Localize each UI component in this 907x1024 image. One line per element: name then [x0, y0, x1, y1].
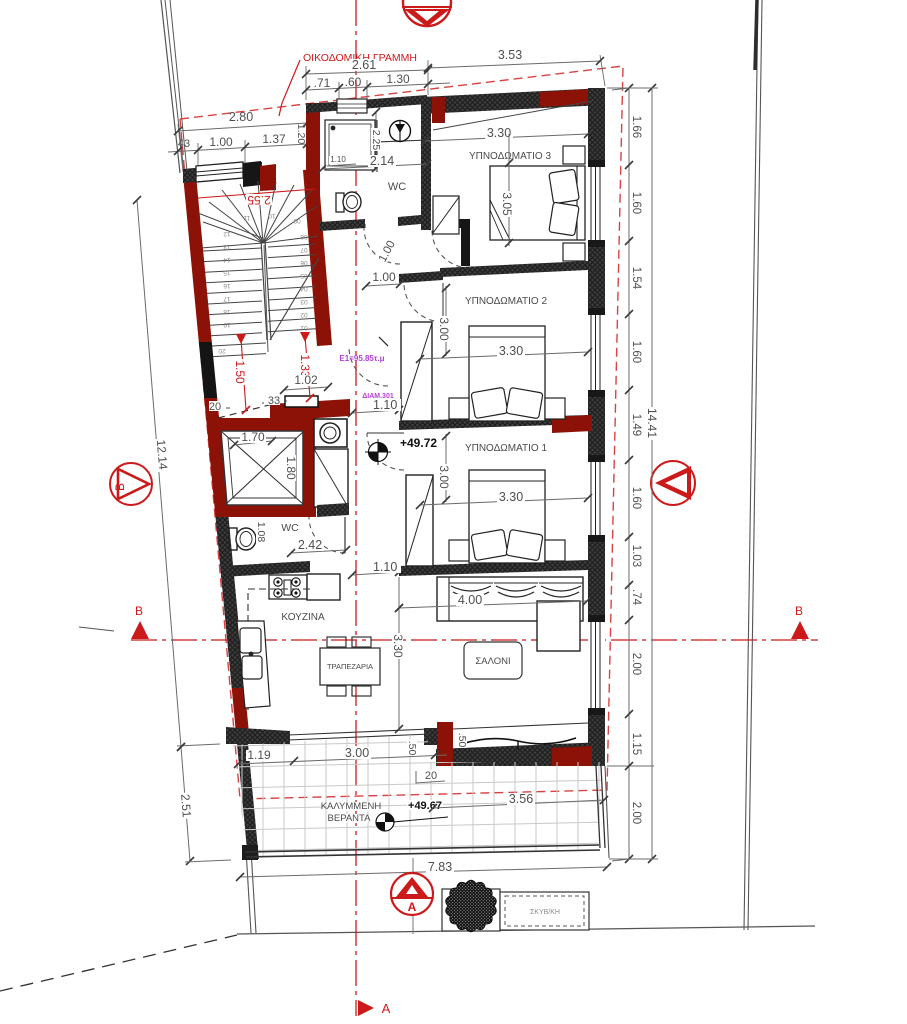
svg-text:09: 09: [293, 217, 301, 224]
svg-text:WC: WC: [388, 181, 406, 193]
svg-text:1.54: 1.54: [630, 267, 642, 290]
svg-text:1.02: 1.02: [294, 373, 318, 387]
svg-text:B: B: [113, 483, 127, 491]
svg-text:3.53: 3.53: [498, 48, 522, 62]
svg-text:1.15: 1.15: [630, 733, 642, 755]
svg-text:ΥΠΝΟΔΩΜΑΤΙΟ 2: ΥΠΝΟΔΩΜΑΤΙΟ 2: [465, 296, 548, 307]
svg-text:02: 02: [300, 311, 308, 318]
svg-text:1.60: 1.60: [630, 341, 642, 363]
svg-text:1.70: 1.70: [241, 430, 265, 444]
svg-text:ΣΑΛΟΝΙ: ΣΑΛΟΝΙ: [475, 656, 510, 667]
svg-text:2.25: 2.25: [370, 130, 382, 151]
svg-text:20: 20: [218, 347, 226, 354]
svg-text:ΥΠΝΟΔΩΜΑΤΙΟ 3: ΥΠΝΟΔΩΜΑΤΙΟ 3: [469, 151, 552, 162]
svg-text:2.00: 2.00: [630, 653, 642, 675]
svg-text:+49.67: +49.67: [408, 800, 442, 812]
svg-text:1.60: 1.60: [630, 487, 642, 509]
svg-text:1.19: 1.19: [247, 748, 271, 762]
svg-text:06: 06: [300, 259, 308, 266]
svg-text:08: 08: [300, 233, 308, 240]
svg-text:A: A: [382, 1001, 391, 1016]
svg-text:04: 04: [300, 285, 308, 292]
svg-text:1.00: 1.00: [372, 270, 396, 284]
svg-text:1.30: 1.30: [386, 72, 410, 86]
svg-text:13: 13: [223, 243, 231, 250]
svg-text:.74: .74: [630, 589, 642, 606]
svg-text:10: 10: [268, 212, 276, 219]
svg-text:2.51: 2.51: [178, 794, 194, 819]
svg-text:33: 33: [268, 395, 280, 407]
svg-text:1.10: 1.10: [373, 560, 397, 574]
svg-text:03: 03: [300, 298, 308, 305]
svg-text:1.50: 1.50: [233, 360, 247, 384]
svg-text:11: 11: [243, 214, 250, 221]
svg-text:3.56: 3.56: [509, 792, 533, 806]
svg-text:17: 17: [223, 295, 231, 302]
svg-text:.50: .50: [406, 741, 418, 756]
svg-text:14.41: 14.41: [645, 408, 659, 438]
svg-text:2.42: 2.42: [298, 538, 322, 552]
svg-text:.60: .60: [345, 75, 362, 89]
svg-text:18: 18: [223, 308, 231, 315]
svg-text:1.10: 1.10: [373, 398, 397, 412]
svg-text:19: 19: [223, 321, 231, 328]
svg-text:B: B: [795, 604, 803, 618]
svg-text:1.80: 1.80: [284, 456, 298, 480]
svg-text:1.00: 1.00: [209, 135, 233, 149]
svg-text:1.03: 1.03: [630, 545, 642, 567]
svg-text:2.55: 2.55: [247, 193, 271, 207]
svg-text:20: 20: [209, 401, 221, 413]
svg-text:B: B: [135, 604, 143, 618]
svg-text:ΚΟΥΖΙΝΑ: ΚΟΥΖΙΝΑ: [281, 612, 325, 623]
svg-text:WC: WC: [281, 522, 299, 534]
svg-text:3.00: 3.00: [345, 746, 369, 760]
svg-text:2.14: 2.14: [370, 154, 394, 168]
svg-text:ΔΙΑΜ.301: ΔΙΑΜ.301: [362, 393, 394, 400]
svg-text:3.30: 3.30: [487, 126, 511, 140]
svg-text:1.66: 1.66: [630, 116, 642, 138]
svg-text:ΥΠΝΟΔΩΜΑΤΙΟ 1: ΥΠΝΟΔΩΜΑΤΙΟ 1: [465, 443, 548, 454]
svg-text:43: 43: [178, 138, 190, 150]
svg-text:7.83: 7.83: [428, 860, 452, 874]
svg-text:1.20: 1.20: [295, 124, 307, 145]
svg-text:12: 12: [223, 230, 231, 237]
svg-text:.50: .50: [456, 733, 468, 748]
svg-text:14: 14: [223, 256, 231, 263]
svg-text:1.60: 1.60: [630, 192, 642, 214]
svg-text:3.00: 3.00: [437, 465, 451, 489]
svg-text:2.80: 2.80: [229, 110, 253, 124]
svg-text:+49.72: +49.72: [400, 436, 437, 450]
svg-text:ΒΕΡΑΝΤΑ: ΒΕΡΑΝΤΑ: [328, 813, 372, 824]
svg-text:20: 20: [425, 770, 437, 782]
svg-text:A: A: [408, 900, 417, 914]
svg-text:ΤΡΑΠΕΖΑΡΙΑ: ΤΡΑΠΕΖΑΡΙΑ: [327, 662, 373, 671]
svg-text:3.00: 3.00: [437, 317, 451, 341]
svg-text:.71: .71: [314, 76, 331, 90]
svg-text:3.30: 3.30: [391, 634, 405, 658]
svg-text:1.37: 1.37: [262, 132, 286, 146]
svg-text:3.30: 3.30: [499, 490, 523, 504]
svg-text:15: 15: [223, 269, 231, 276]
svg-text:01: 01: [300, 324, 308, 331]
svg-text:05: 05: [300, 272, 308, 279]
svg-text:ΚΑΛΥΜΜΕΝΗ: ΚΑΛΥΜΜΕΝΗ: [321, 801, 382, 812]
svg-text:1.10: 1.10: [330, 155, 346, 164]
svg-text:2.61: 2.61: [352, 58, 376, 72]
svg-text:3.05: 3.05: [500, 192, 514, 216]
svg-text:ΣΚΥΒ/ΚΗ: ΣΚΥΒ/ΚΗ: [530, 909, 560, 916]
svg-text:1.49: 1.49: [630, 414, 642, 436]
svg-text:Ε1=95.85τ.μ: Ε1=95.85τ.μ: [339, 354, 384, 363]
svg-text:07: 07: [300, 246, 308, 253]
svg-text:4.00: 4.00: [458, 593, 482, 607]
svg-text:2.00: 2.00: [630, 802, 642, 824]
svg-text:16: 16: [223, 282, 231, 289]
svg-text:1.08: 1.08: [255, 522, 267, 543]
svg-text:3.30: 3.30: [499, 344, 523, 358]
svg-text:12.14: 12.14: [154, 439, 171, 470]
